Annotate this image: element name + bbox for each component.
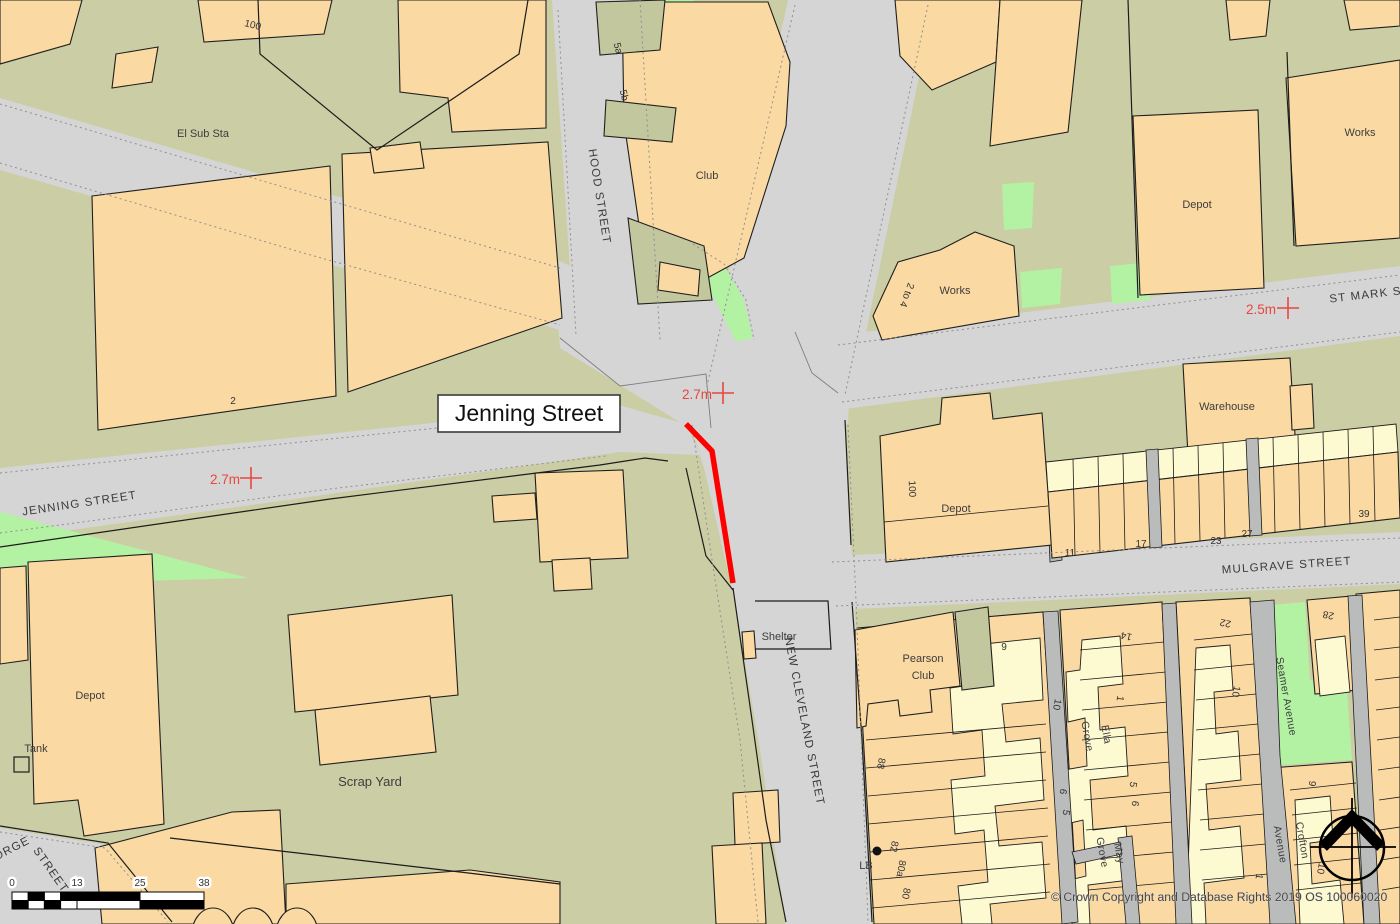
number-label: 2 <box>230 396 236 407</box>
scale-tick: 38 <box>198 878 210 889</box>
scale-tick: 13 <box>71 878 83 889</box>
place-label-depot-100: Depot <box>941 503 970 515</box>
number-label: 100 <box>906 480 918 497</box>
place-label-pearson: Pearson <box>903 653 944 665</box>
place-label-works-corner: Works <box>1345 127 1376 139</box>
place-label-tank: Tank <box>24 743 48 755</box>
place-label-warehouse: Warehouse <box>1199 401 1255 413</box>
scale-tick: 0 <box>9 878 15 889</box>
scale-tick: 25 <box>134 878 146 889</box>
place-label-depot-west: Depot <box>75 690 104 702</box>
place-label-scrap-yard: Scrap Yard <box>338 774 402 789</box>
number-label: 9 <box>1001 642 1007 653</box>
benchmark-value: 2.5m <box>1246 302 1276 317</box>
page-title: Jenning Street <box>455 400 604 426</box>
number-label: 17 <box>1135 539 1147 550</box>
number-label: 39 <box>1358 509 1370 520</box>
benchmark-value: 2.7m <box>210 472 240 487</box>
place-label-depot-ne: Depot <box>1182 199 1211 211</box>
place-label-club: Club <box>696 170 719 182</box>
place-label-lb: LB <box>859 860 872 872</box>
place-label-el-sub-sta: El Sub Sta <box>177 128 230 140</box>
map-canvas: HOOD STREET JENNING STREET ST MARK ST MU… <box>0 0 1400 924</box>
place-label-pearson-club: Club <box>912 670 935 682</box>
number-label: 23 <box>1210 536 1222 547</box>
title-box: Jenning Street <box>438 395 620 432</box>
number-label: 27 <box>1241 529 1253 540</box>
lb-post-marker <box>873 847 882 856</box>
place-label-works: Works <box>940 285 971 297</box>
place-label-shelter: Shelter <box>762 631 797 643</box>
benchmark-value: 2.7m <box>682 387 712 402</box>
copyright-notice: © Crown Copyright and Database Rights 20… <box>1051 890 1387 904</box>
number-label: 11 <box>1065 548 1076 559</box>
